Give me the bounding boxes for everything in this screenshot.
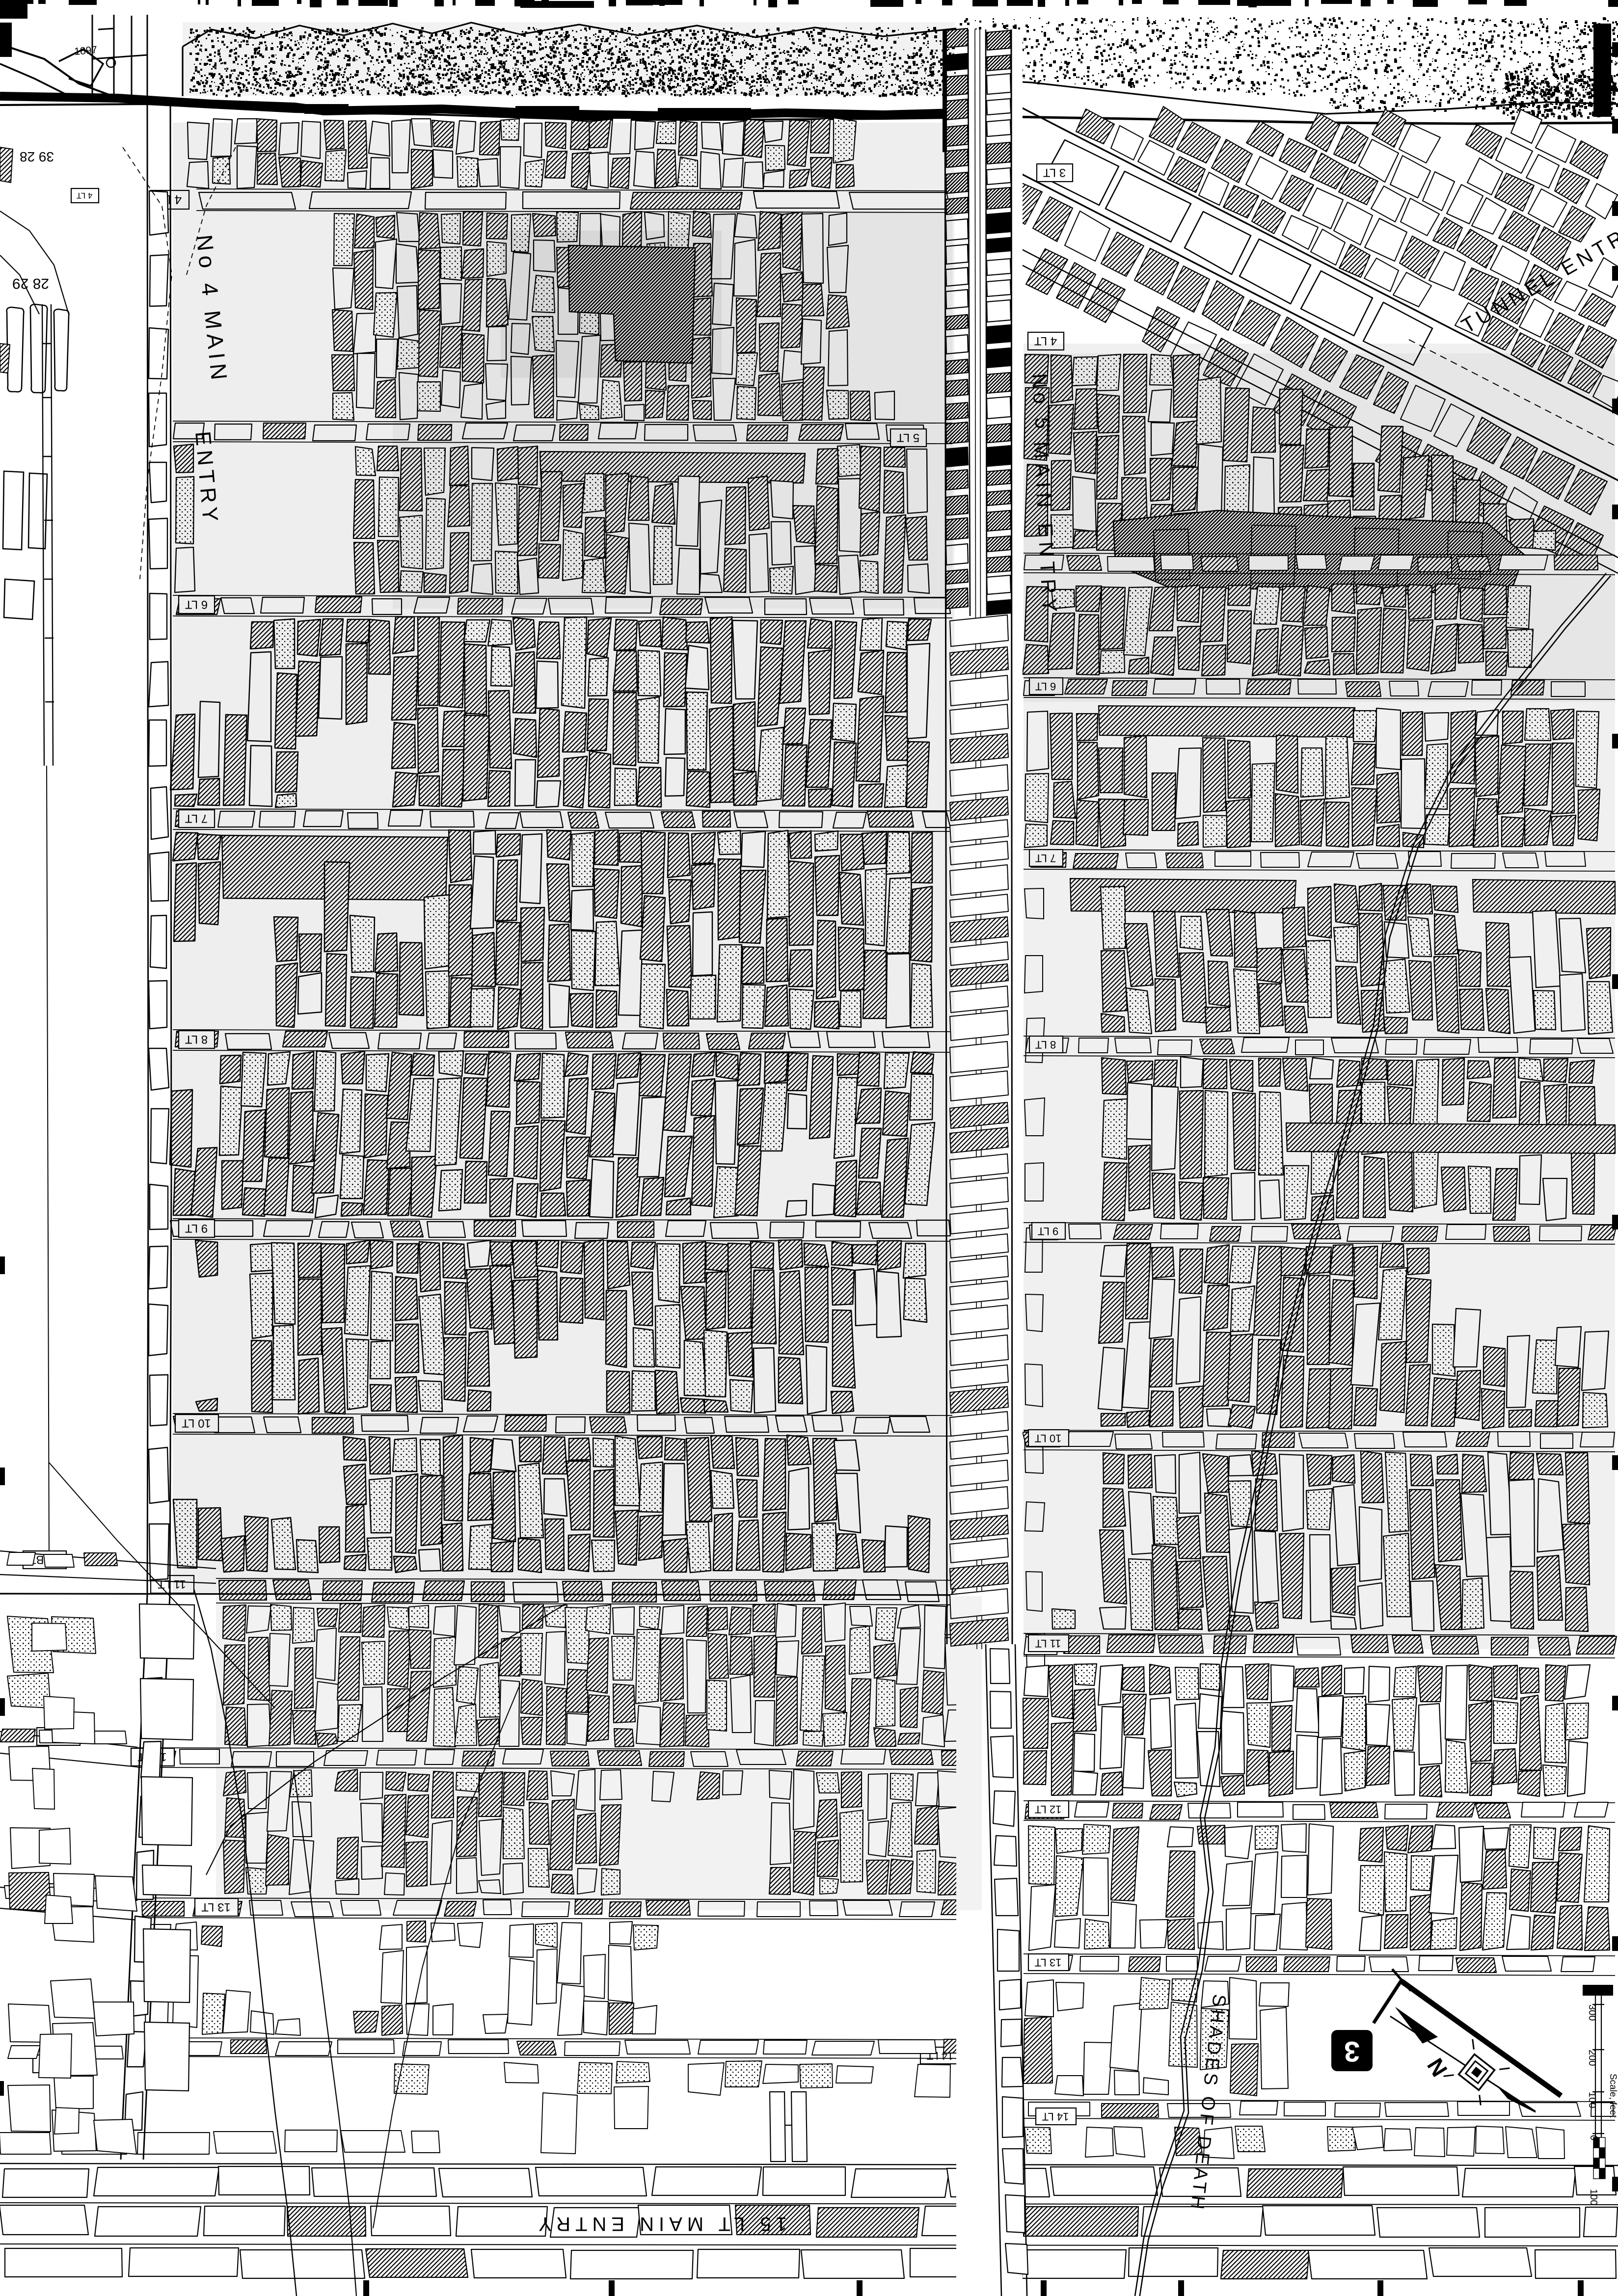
svg-text:0: 0: [1588, 2135, 1599, 2140]
svg-text:200: 200: [1587, 2050, 1597, 2066]
svg-text:300: 300: [1587, 2004, 1597, 2021]
svg-text:4 LT: 4 LT: [77, 191, 93, 200]
svg-text:100: 100: [1588, 2189, 1599, 2205]
svg-text:3 LT: 3 LT: [1043, 166, 1066, 179]
svg-text:15 LT MAIN ENTRY: 15 LT MAIN ENTRY: [534, 2213, 787, 2235]
svg-text:3: 3: [1344, 2035, 1360, 2067]
svg-text:13 LT: 13 LT: [1035, 1956, 1062, 1969]
svg-text:14 LT: 14 LT: [1042, 2110, 1069, 2123]
svg-text:28 29: 28 29: [12, 275, 49, 292]
svg-text:39 28: 39 28: [20, 149, 54, 164]
svg-text:12 LT: 12 LT: [1035, 1803, 1062, 1815]
svg-text:1897: 1897: [74, 44, 98, 57]
svg-text:100: 100: [1587, 2092, 1597, 2108]
svg-text:Scale, feet: Scale, feet: [1608, 2074, 1618, 2118]
